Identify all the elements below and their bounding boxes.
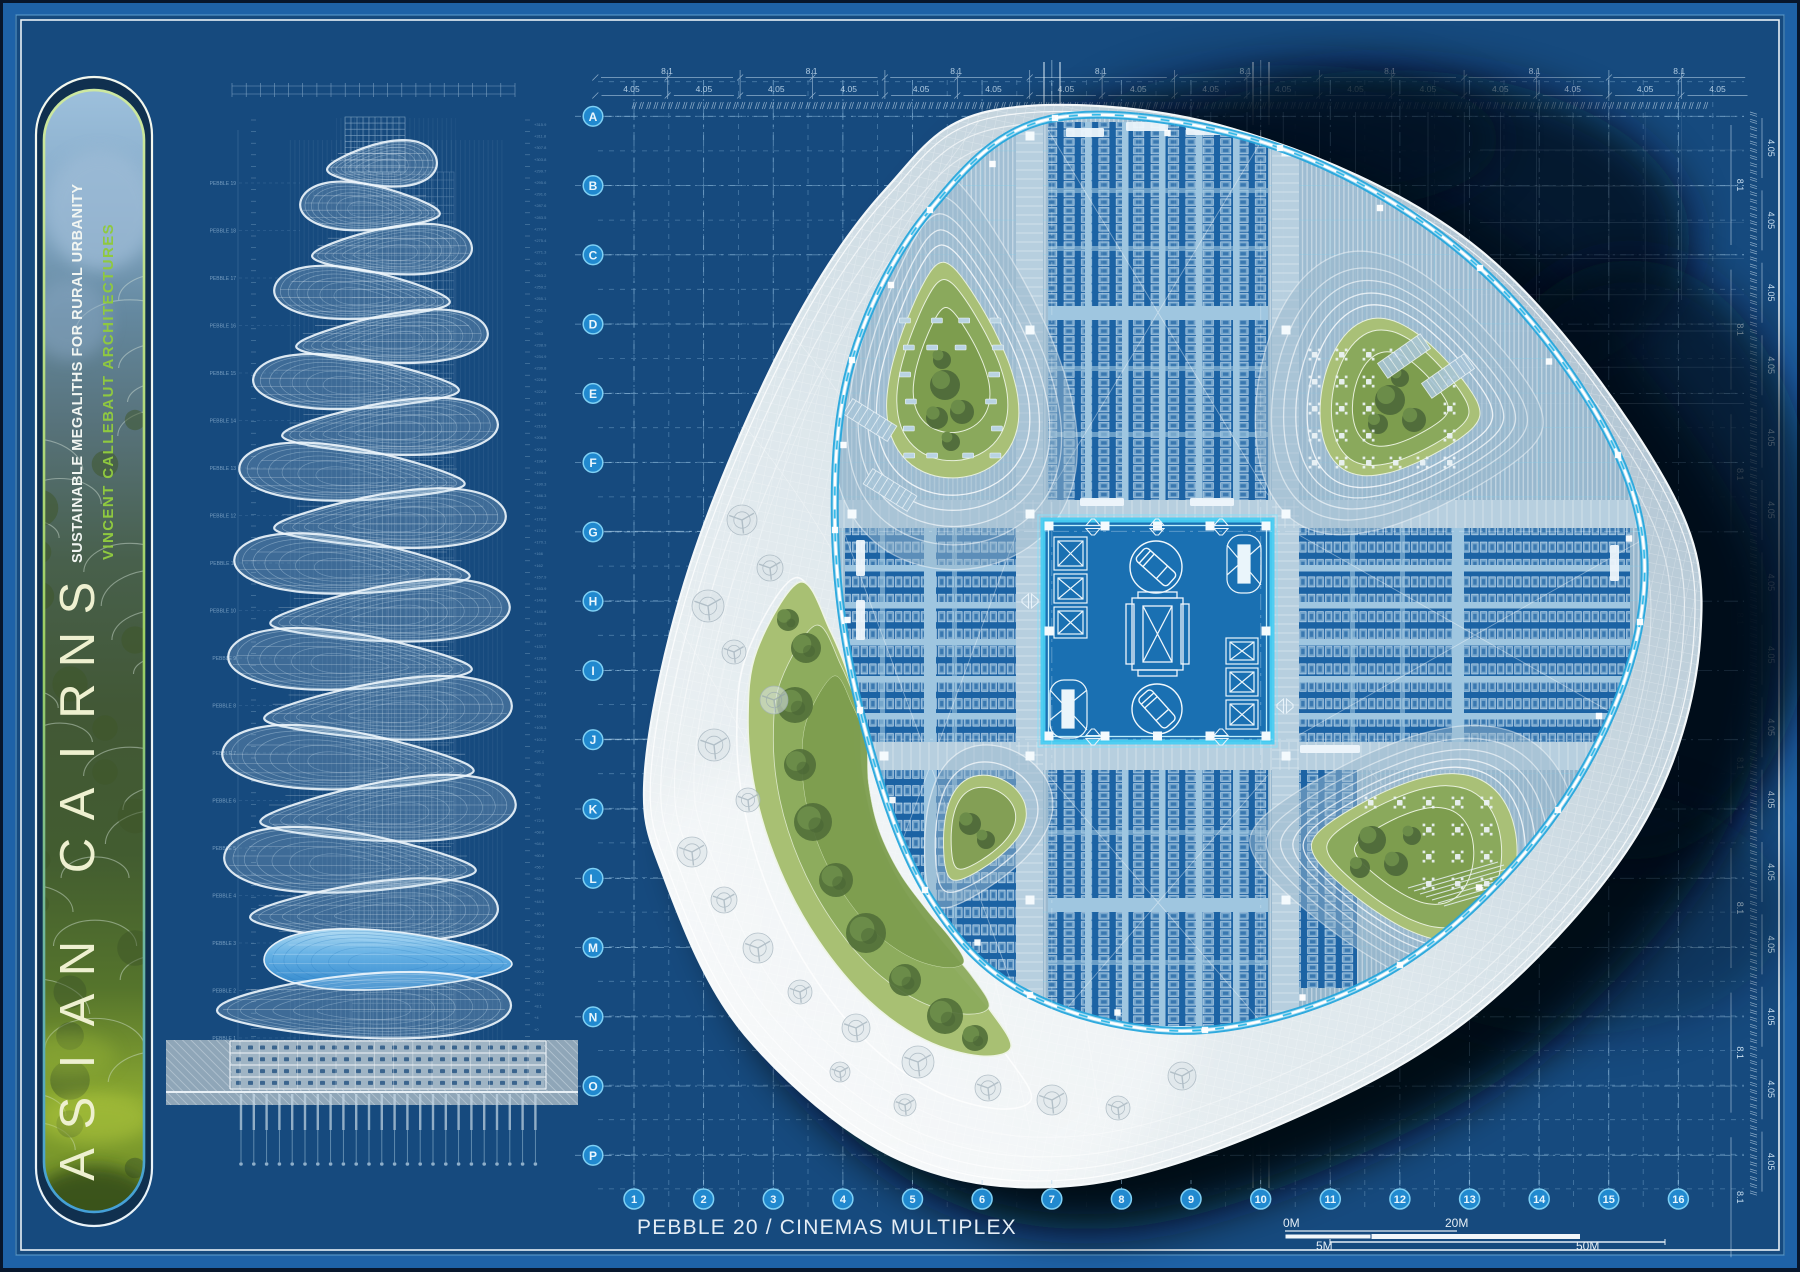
svg-text:4.05: 4.05: [1709, 84, 1726, 94]
svg-text:8.1: 8.1: [806, 66, 818, 76]
svg-text:4.05: 4.05: [768, 84, 785, 94]
svg-text:4.05: 4.05: [1766, 139, 1776, 157]
svg-text:+267.3: +267.3: [534, 261, 547, 266]
svg-text:3: 3: [770, 1194, 776, 1206]
svg-text:+202.5: +202.5: [534, 447, 547, 452]
svg-text:A: A: [51, 1148, 105, 1181]
svg-text:1: 1: [631, 1194, 637, 1206]
svg-text:O: O: [588, 1080, 597, 1094]
svg-text:+210.6: +210.6: [534, 424, 547, 429]
svg-text:+40.5: +40.5: [534, 911, 545, 916]
svg-text:+48.6: +48.6: [534, 888, 545, 893]
svg-text:+275.4: +275.4: [534, 238, 547, 243]
svg-text:L: L: [589, 872, 596, 886]
svg-text:PEBBLE 11: PEBBLE 11: [210, 561, 236, 567]
svg-text:+287.6: +287.6: [534, 203, 547, 208]
svg-text:+251.1: +251.1: [534, 308, 547, 313]
svg-text:4.05: 4.05: [1766, 1153, 1776, 1171]
svg-text:J: J: [590, 733, 597, 747]
svg-text:PEBBLE 4: PEBBLE 4: [212, 894, 236, 900]
svg-text:+77: +77: [534, 806, 542, 811]
svg-text:+303.8: +303.8: [534, 157, 547, 162]
svg-text:+291.6: +291.6: [534, 192, 547, 197]
svg-text:2: 2: [701, 1194, 707, 1206]
svg-text:12: 12: [1394, 1194, 1406, 1206]
svg-text:PEBBLE 8: PEBBLE 8: [212, 704, 236, 710]
svg-text:+198.4: +198.4: [534, 458, 547, 463]
svg-text:4.05: 4.05: [696, 84, 713, 94]
svg-text:8.1: 8.1: [1735, 179, 1745, 192]
svg-text:PEBBLE 20 / CINEMAS MULTIPLEX: PEBBLE 20 / CINEMAS MULTIPLEX: [637, 1216, 1017, 1239]
svg-text:+174.2: +174.2: [534, 528, 547, 533]
svg-text:E: E: [589, 387, 597, 401]
svg-text:+133.7: +133.7: [534, 644, 547, 649]
svg-text:16: 16: [1672, 1194, 1684, 1206]
svg-text:4.05: 4.05: [913, 84, 930, 94]
svg-text:PEBBLE 12: PEBBLE 12: [210, 514, 237, 520]
svg-text:+4: +4: [534, 1015, 539, 1020]
svg-text:+28.3: +28.3: [534, 946, 545, 951]
svg-text:+259.2: +259.2: [534, 284, 547, 289]
svg-text:PEBBLE 19: PEBBLE 19: [210, 181, 237, 187]
svg-text:+8.1: +8.1: [534, 1004, 543, 1009]
svg-text:N: N: [51, 632, 105, 667]
svg-text:+190.3: +190.3: [534, 482, 547, 487]
svg-text:PEBBLE 6: PEBBLE 6: [212, 799, 236, 805]
svg-text:N: N: [589, 1010, 598, 1024]
svg-text:PEBBLE 18: PEBBLE 18: [210, 229, 237, 235]
svg-text:+0: +0: [534, 1027, 539, 1032]
svg-text:VINCENT CALLEBAUT ARCHITECTURE: VINCENT CALLEBAUT ARCHITECTURES: [100, 223, 117, 560]
svg-text:H: H: [589, 595, 598, 609]
svg-text:+226.8: +226.8: [534, 377, 547, 382]
svg-text:+206.5: +206.5: [534, 435, 547, 440]
svg-text:+109.3: +109.3: [534, 714, 547, 719]
svg-text:+36.4: +36.4: [534, 922, 545, 927]
svg-text:A: A: [589, 110, 598, 124]
svg-text:+113.4: +113.4: [534, 702, 547, 707]
svg-text:+234.9: +234.9: [534, 354, 547, 359]
svg-text:9: 9: [1188, 1194, 1194, 1206]
svg-text:+24.3: +24.3: [534, 957, 545, 962]
svg-text:14: 14: [1533, 1194, 1546, 1206]
svg-text:+162: +162: [534, 563, 544, 568]
svg-text:D: D: [589, 318, 598, 332]
svg-text:+271.3: +271.3: [534, 250, 547, 255]
svg-text:R: R: [51, 683, 105, 718]
svg-text:S: S: [51, 1097, 105, 1130]
svg-text:0M: 0M: [1283, 1216, 1300, 1230]
svg-text:PEBBLE 2: PEBBLE 2: [212, 989, 236, 995]
svg-text:+299.7: +299.7: [534, 168, 547, 173]
svg-text:G: G: [588, 525, 597, 539]
svg-text:7: 7: [1049, 1194, 1055, 1206]
svg-text:+32.4: +32.4: [534, 934, 545, 939]
svg-text:5: 5: [909, 1194, 915, 1206]
svg-text:50M: 50M: [1576, 1239, 1599, 1253]
svg-text:+186.3: +186.3: [534, 493, 547, 498]
svg-text:+283.5: +283.5: [534, 215, 547, 220]
svg-text:+137.7: +137.7: [534, 632, 547, 637]
svg-text:4.05: 4.05: [985, 84, 1002, 94]
svg-text:+105.3: +105.3: [534, 725, 547, 730]
svg-text:+20.2: +20.2: [534, 969, 545, 974]
svg-text:+230.8: +230.8: [534, 366, 547, 371]
svg-text:+263.2: +263.2: [534, 273, 547, 278]
svg-text:+149.8: +149.8: [534, 598, 547, 603]
svg-text:S: S: [51, 582, 105, 615]
svg-text:+129.6: +129.6: [534, 656, 547, 661]
svg-text:PEBBLE 16: PEBBLE 16: [210, 324, 237, 330]
svg-text:+56.7: +56.7: [534, 864, 545, 869]
svg-text:8.1: 8.1: [1529, 66, 1541, 76]
svg-text:+72.9: +72.9: [534, 818, 545, 823]
svg-text:4.05: 4.05: [1766, 212, 1776, 230]
svg-text:P: P: [589, 1149, 597, 1163]
svg-text:+315.9: +315.9: [534, 122, 547, 127]
svg-text:8.1: 8.1: [950, 66, 962, 76]
svg-text:N: N: [51, 941, 105, 976]
svg-text:M: M: [588, 941, 598, 955]
svg-text:C: C: [589, 248, 598, 262]
svg-text:+68.8: +68.8: [534, 830, 545, 835]
svg-text:+64.8: +64.8: [534, 841, 545, 846]
svg-text:I: I: [591, 664, 594, 678]
svg-text:F: F: [589, 456, 596, 470]
svg-text:4.05: 4.05: [840, 84, 857, 94]
svg-text:10: 10: [1255, 1194, 1267, 1206]
svg-text:I: I: [51, 746, 105, 760]
svg-text:+85: +85: [534, 783, 542, 788]
svg-text:4.05: 4.05: [1766, 1008, 1776, 1026]
svg-text:11: 11: [1324, 1194, 1336, 1206]
svg-text:+194.4: +194.4: [534, 470, 547, 475]
svg-text:+182.2: +182.2: [534, 505, 547, 510]
svg-text:+52.6: +52.6: [534, 876, 545, 881]
svg-text:+166: +166: [534, 551, 544, 556]
svg-text:+93.1: +93.1: [534, 760, 545, 765]
svg-text:PEBBLE 17: PEBBLE 17: [210, 276, 237, 282]
svg-text:4.05: 4.05: [1766, 791, 1776, 809]
svg-text:PEBBLE 14: PEBBLE 14: [210, 419, 237, 425]
svg-text:C: C: [51, 838, 105, 873]
svg-text:20M: 20M: [1445, 1216, 1468, 1230]
svg-text:+243: +243: [534, 331, 544, 336]
svg-text:8.1: 8.1: [661, 66, 673, 76]
svg-text:+153.9: +153.9: [534, 586, 547, 591]
svg-text:13: 13: [1463, 1194, 1475, 1206]
svg-text:15: 15: [1603, 1194, 1615, 1206]
svg-text:I: I: [51, 1055, 105, 1069]
svg-text:+157.9: +157.9: [534, 574, 547, 579]
svg-text:8.1: 8.1: [1735, 1046, 1745, 1059]
svg-text:6: 6: [979, 1194, 985, 1206]
svg-text:+101.2: +101.2: [534, 737, 547, 742]
svg-text:A: A: [51, 787, 105, 820]
svg-text:4.05: 4.05: [1564, 84, 1581, 94]
svg-text:+307.8: +307.8: [534, 145, 547, 150]
svg-text:+16.2: +16.2: [534, 980, 545, 985]
svg-text:+89.1: +89.1: [534, 772, 545, 777]
svg-text:+178.2: +178.2: [534, 516, 547, 521]
svg-text:+222.8: +222.8: [534, 389, 547, 394]
svg-text:K: K: [589, 803, 598, 817]
svg-text:4.05: 4.05: [623, 84, 640, 94]
svg-text:PEBBLE 3: PEBBLE 3: [212, 941, 236, 947]
svg-text:+295.6: +295.6: [534, 180, 547, 185]
svg-text:+311.8: +311.8: [534, 134, 547, 139]
svg-text:+81: +81: [534, 795, 542, 800]
svg-text:+12.1: +12.1: [534, 992, 545, 997]
svg-text:+121.5: +121.5: [534, 679, 547, 684]
svg-text:4.05: 4.05: [1766, 1080, 1776, 1098]
svg-text:+218.7: +218.7: [534, 400, 547, 405]
svg-text:+125.5: +125.5: [534, 667, 547, 672]
svg-text:4.05: 4.05: [1766, 284, 1776, 302]
svg-text:4: 4: [840, 1194, 847, 1206]
svg-text:8.1: 8.1: [1673, 66, 1685, 76]
svg-text:+60.8: +60.8: [534, 853, 545, 858]
svg-text:PEBBLE 13: PEBBLE 13: [210, 466, 237, 472]
svg-text:B: B: [589, 179, 598, 193]
svg-text:+170.1: +170.1: [534, 540, 547, 545]
svg-text:4.05: 4.05: [1637, 84, 1654, 94]
svg-text:8.1: 8.1: [1735, 1191, 1745, 1204]
svg-text:SUSTAINABLE MEGALITHS FOR RURA: SUSTAINABLE MEGALITHS FOR RURAL URBANITY: [70, 183, 86, 563]
svg-text:+97.2: +97.2: [534, 748, 545, 753]
svg-text:A: A: [51, 993, 105, 1026]
svg-text:+44.5: +44.5: [534, 899, 545, 904]
svg-text:PEBBLE 10: PEBBLE 10: [210, 609, 237, 615]
svg-text:8: 8: [1118, 1194, 1124, 1206]
svg-text:PEBBLE 15: PEBBLE 15: [210, 371, 237, 377]
svg-text:+247: +247: [534, 319, 544, 324]
svg-text:+141.8: +141.8: [534, 621, 547, 626]
svg-text:+238.9: +238.9: [534, 342, 547, 347]
svg-text:8.1: 8.1: [1095, 66, 1107, 76]
svg-text:+117.4: +117.4: [534, 690, 547, 695]
svg-text:+214.6: +214.6: [534, 412, 547, 417]
svg-text:+145.8: +145.8: [534, 609, 547, 614]
svg-text:+279.4: +279.4: [534, 226, 547, 231]
svg-text:+255.1: +255.1: [534, 296, 547, 301]
